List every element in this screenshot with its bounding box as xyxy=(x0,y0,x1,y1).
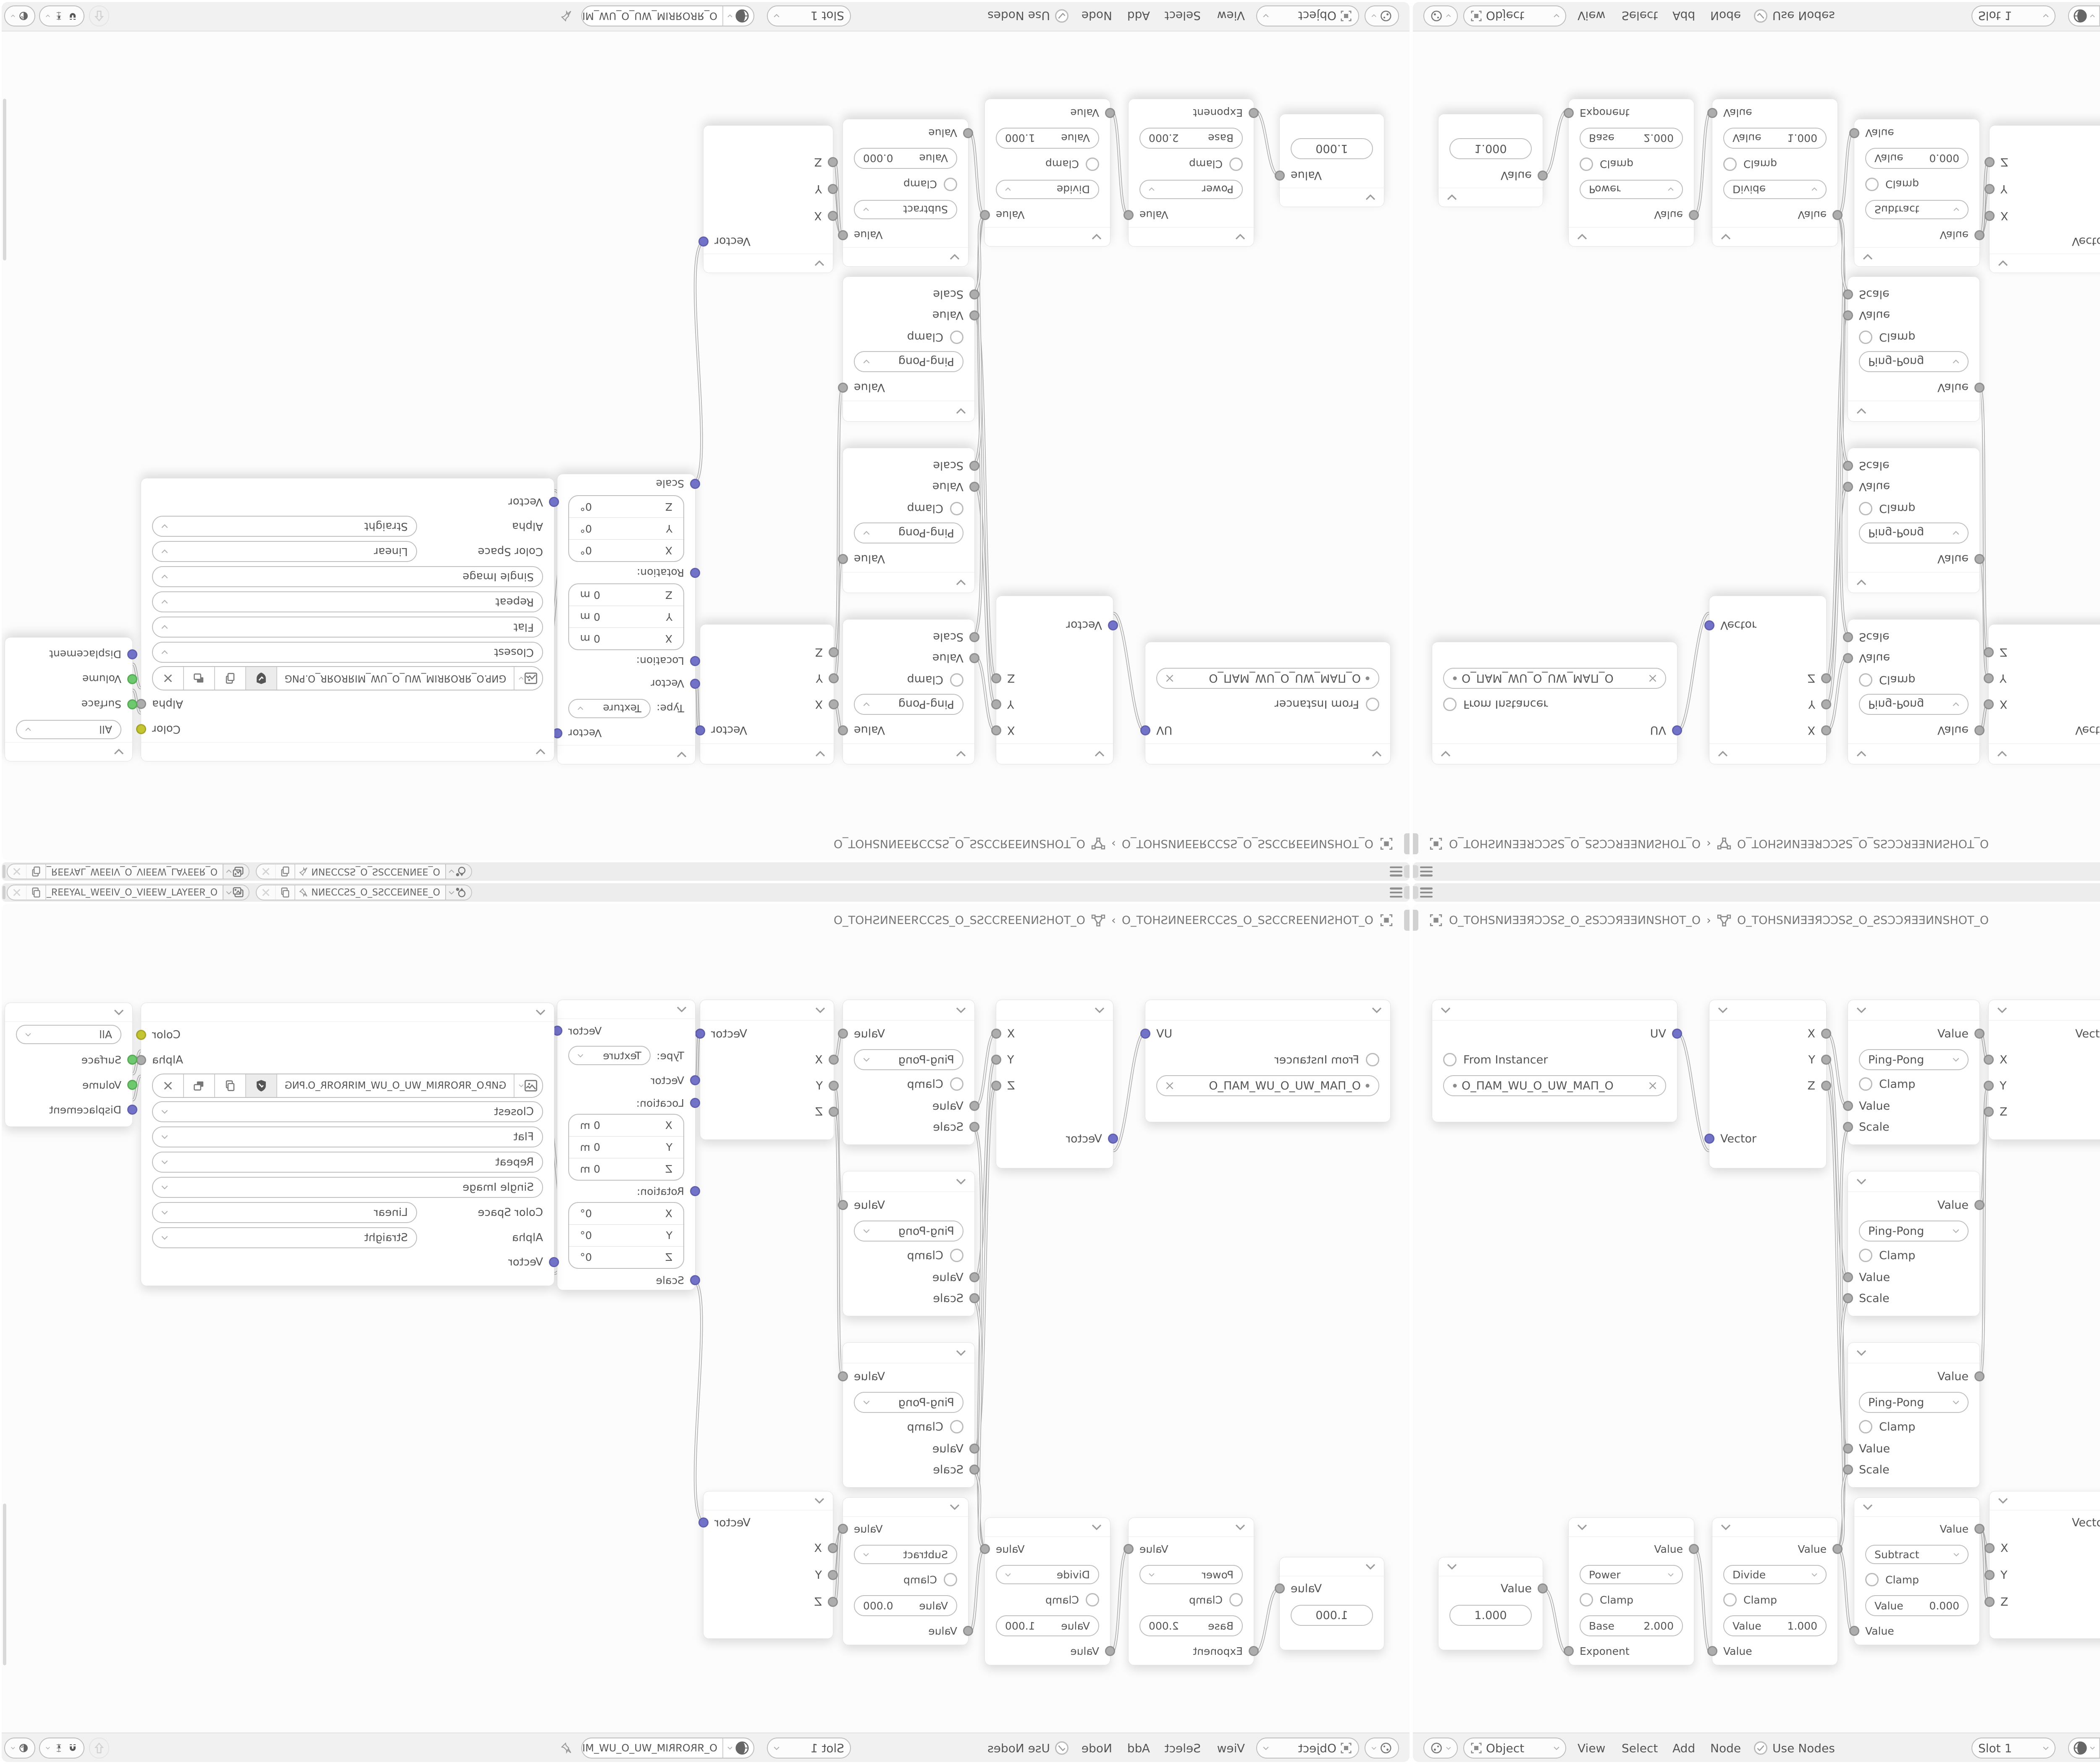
copy-icon[interactable] xyxy=(27,885,46,900)
vector-input-socket[interactable] xyxy=(1704,620,1714,630)
uv-output-socket[interactable] xyxy=(1672,1029,1682,1039)
copy-image-icon[interactable] xyxy=(215,667,246,690)
operation-select[interactable]: Divide xyxy=(1723,1565,1827,1584)
value-input-socket[interactable] xyxy=(963,1626,973,1636)
scale-input-socket[interactable] xyxy=(969,632,979,642)
location-fields[interactable]: X0 m Y0 m Z0 m xyxy=(568,584,684,651)
displacement-input-socket[interactable] xyxy=(127,649,137,659)
vector-input-socket[interactable] xyxy=(1108,1134,1118,1144)
node-canvas[interactable]: O_TOHSNИƎƎЯƆƆSƧ_O_ƧSƆƆЯƎƎИNSHOT_O › O_TO… xyxy=(2,904,1410,1732)
x-output-socket[interactable] xyxy=(991,1029,1001,1039)
material-selector[interactable]: O_ЯROЯRIM_WU_O_UW_MIЯROЯR_O xyxy=(2068,1738,2100,1759)
menu-select[interactable]: Select xyxy=(1165,1738,1201,1759)
color-output-socket[interactable] xyxy=(136,724,146,734)
operation-select[interactable]: Power xyxy=(1139,180,1243,199)
value-input-socket[interactable] xyxy=(969,653,979,663)
x-output-socket[interactable] xyxy=(991,725,1001,735)
uv-map-select[interactable]: O_ПAM_WU_O_UW_MAП_O xyxy=(1443,668,1666,689)
operation-select[interactable]: Ping-Pong xyxy=(854,1392,963,1413)
view-layer-name[interactable]: O_ЯƎƎYA⅃_WƎƎIV_O_VIƎƎW_⅃AYƎƎЯ_O xyxy=(46,864,223,879)
y-input-socket[interactable] xyxy=(1984,673,1994,683)
node-canvas[interactable]: O_TOHSNИƎƎЯƆƆSƧ_O_ƧSƆƆЯƎƎИNSHOT_O › O_TO… xyxy=(1413,904,2100,1732)
node-collapse[interactable] xyxy=(1432,743,1677,764)
from-instancer-checkbox[interactable] xyxy=(1443,698,1457,711)
clamp-checkbox[interactable] xyxy=(944,1573,957,1586)
menu-hamburger-icon[interactable] xyxy=(1420,887,1433,898)
menu-add[interactable]: Add xyxy=(1127,1738,1150,1759)
base-field[interactable]: Base2.000 xyxy=(1139,128,1243,149)
x-input-socket[interactable] xyxy=(1984,699,1994,709)
value-output-socket[interactable] xyxy=(1974,1200,1984,1210)
scrollbar-fragment[interactable] xyxy=(3,886,5,899)
node-combine-xyz-bottom[interactable]: Vector X Y Z xyxy=(1989,125,2100,273)
parent-up-button[interactable] xyxy=(89,5,109,26)
menu-hamburger-icon[interactable] xyxy=(1420,866,1433,877)
node-separate-xyz[interactable]: X Y Z Vector xyxy=(996,596,1113,764)
material-sphere-icon[interactable] xyxy=(2069,6,2099,26)
editor-type-select[interactable] xyxy=(1423,5,1458,26)
y-input-socket[interactable] xyxy=(1984,184,1995,194)
location-fields[interactable]: X0 m Y0 m Z0 m xyxy=(568,1114,684,1181)
node-math-pingpong-2[interactable]: Value Ping-Pong Clamp Value Scale xyxy=(1848,448,1980,593)
mapping-type-select[interactable]: Texture xyxy=(568,699,651,718)
z-input-socket[interactable] xyxy=(828,1597,838,1607)
menu-hamburger-icon[interactable] xyxy=(1390,866,1402,877)
value-output-socket[interactable] xyxy=(1832,1544,1843,1554)
clamp-checkbox[interactable] xyxy=(1859,502,1872,515)
clamp-checkbox[interactable] xyxy=(950,1420,963,1433)
value-input-socket[interactable] xyxy=(1843,653,1853,663)
uv-output-socket[interactable] xyxy=(1140,725,1150,735)
location-input-socket[interactable] xyxy=(690,1098,700,1108)
unlink-icon[interactable] xyxy=(8,864,27,879)
operation-select[interactable]: Divide xyxy=(996,180,1099,199)
image-icon[interactable] xyxy=(514,1074,542,1097)
value-output-socket[interactable] xyxy=(838,1524,848,1534)
operation-select[interactable]: Ping-Pong xyxy=(854,351,963,372)
value-output-socket[interactable] xyxy=(1974,383,1984,393)
image-name[interactable]: GИP.O_ЯROЯRIM_WU_O_UW_MIЯROЯR_O.PNG xyxy=(277,667,514,690)
interpolation-select[interactable]: Closest xyxy=(152,642,543,663)
value-output-socket[interactable] xyxy=(838,1029,848,1039)
alpha-output-socket[interactable] xyxy=(136,699,146,709)
copy-image-icon[interactable] xyxy=(215,1074,246,1097)
volume-input-socket[interactable] xyxy=(127,1080,137,1090)
value-input-socket[interactable] xyxy=(1843,1444,1853,1454)
location-input-socket[interactable] xyxy=(690,656,700,666)
y-output-socket[interactable] xyxy=(1821,1055,1831,1065)
node-math-divide[interactable]: Value Divide Clamp Value1.000 Value xyxy=(1712,1517,1838,1665)
vector-input-socket[interactable] xyxy=(690,1075,700,1085)
node-collapse[interactable] xyxy=(1432,1000,1677,1021)
node-math-power[interactable]: Value Power Clamp Base2.000 Exponent xyxy=(1128,1517,1254,1665)
material-selector[interactable]: O_ЯROЯRIM_WU_O_UW_MIЯROЯR_O xyxy=(2068,5,2100,26)
scale-input-socket[interactable] xyxy=(1843,289,1853,299)
material-selector[interactable]: O_ЯROЯRIM_WU_O_UW_MIЯROЯR_O xyxy=(581,5,754,26)
clamp-checkbox[interactable] xyxy=(944,178,957,191)
snapping-control[interactable] xyxy=(39,5,84,26)
shader-mode-select[interactable]: Object xyxy=(1463,1738,1566,1759)
x-input-socket[interactable] xyxy=(828,211,838,221)
view-layer-name[interactable]: O_ЯƎƎYA⅃_WƎƎIV_O_VIƎƎW_⅃AYƎƎЯ_O xyxy=(46,885,223,900)
value-output-socket[interactable] xyxy=(1689,1544,1699,1554)
unlink-x-icon[interactable] xyxy=(153,1074,184,1097)
value-input-socket[interactable] xyxy=(969,1444,979,1454)
operation-select[interactable]: Subtract xyxy=(854,1545,957,1564)
value-output-socket[interactable] xyxy=(1538,171,1548,181)
node-collapse[interactable] xyxy=(1145,743,1390,764)
output-target-select[interactable]: All xyxy=(16,1025,121,1044)
fake-user-shield-icon[interactable] xyxy=(246,1074,277,1097)
node-math-pingpong-3[interactable]: Value Ping-Pong Clamp Value Scale xyxy=(843,276,975,422)
output-target-select[interactable]: All xyxy=(16,720,121,739)
value-output-socket[interactable] xyxy=(1689,210,1699,220)
material-sphere-icon[interactable] xyxy=(723,6,753,26)
node-uv-map[interactable]: UV From Instancer O_ПAM_WU_O_UW_MAП_O xyxy=(1432,1000,1677,1122)
value-output-socket[interactable] xyxy=(838,1200,848,1210)
value-output-socket[interactable] xyxy=(1538,1583,1548,1593)
operation-select[interactable]: Power xyxy=(1580,180,1683,199)
node-math-subtract[interactable]: Value Subtract Clamp Value0.000 Value xyxy=(1854,1497,1980,1645)
use-nodes-checkbox[interactable]: Use Nodes xyxy=(987,1738,1068,1759)
clear-x-icon[interactable] xyxy=(1648,1081,1657,1090)
view-layer-selector[interactable]: O_ЯƎƎYA⅃_WƎƎIV_O_VIƎƎW_⅃AYƎƎЯ_O xyxy=(7,864,249,879)
use-nodes-checkbox[interactable]: Use Nodes xyxy=(1754,5,1835,26)
clamp-checkbox[interactable] xyxy=(1229,1593,1243,1606)
y-output-socket[interactable] xyxy=(991,699,1001,709)
menu-node[interactable]: Node xyxy=(1710,1738,1741,1759)
x-output-socket[interactable] xyxy=(1821,1029,1831,1039)
node-math-pingpong-1[interactable]: Value Ping-Pong Clamp Value Scale xyxy=(1848,619,1980,764)
value-output-socket[interactable] xyxy=(980,210,990,220)
unlink-x-icon[interactable] xyxy=(153,667,184,690)
scale-input-socket[interactable] xyxy=(969,461,979,471)
y-input-socket[interactable] xyxy=(828,184,838,194)
value-output-socket[interactable] xyxy=(1275,171,1285,181)
uv-map-select[interactable]: O_ПAM_WU_O_UW_MAП_O xyxy=(1443,1075,1666,1096)
node-uv-map[interactable]: UV From Instancer O_ПAM_WU_O_UW_MAП_O xyxy=(1145,642,1391,764)
clamp-checkbox[interactable] xyxy=(1086,157,1099,171)
menu-add[interactable]: Add xyxy=(1672,5,1695,26)
clamp-checkbox[interactable] xyxy=(1865,178,1879,191)
base-field[interactable]: Base2.000 xyxy=(1580,128,1683,149)
node-math-power[interactable]: Value Power Clamp Base2.000 Exponent xyxy=(1128,99,1254,247)
extension-select[interactable]: Repeat xyxy=(152,1152,543,1173)
y-input-socket[interactable] xyxy=(828,1570,838,1580)
menu-select[interactable]: Select xyxy=(1622,5,1658,26)
node-math-divide[interactable]: Value Divide Clamp Value1.000 Value xyxy=(1712,99,1838,247)
node-uv-map[interactable]: UV From Instancer O_ПAM_WU_O_UW_MAП_O xyxy=(1432,642,1677,764)
node-canvas[interactable]: O_TOHSNИƎƎЯƆƆSƧ_O_ƧSƆƆЯƎƎИNSHOT_O › O_TO… xyxy=(2,31,1410,860)
source-select[interactable]: Single Image xyxy=(152,566,543,587)
pack-image-icon[interactable] xyxy=(184,667,215,690)
node-separate-xyz[interactable]: X Y Z Vector xyxy=(1709,596,1827,764)
node-material-output[interactable]: All Surface Volume Displacement xyxy=(5,637,133,761)
z-input-socket[interactable] xyxy=(829,647,839,657)
z-input-socket[interactable] xyxy=(829,1107,839,1117)
uv-output-socket[interactable] xyxy=(1672,725,1682,735)
alpha-output-socket[interactable] xyxy=(136,1055,146,1065)
material-sphere-icon[interactable] xyxy=(723,1738,753,1758)
value-input-socket[interactable] xyxy=(1843,310,1853,320)
projection-select[interactable]: Flat xyxy=(152,1126,543,1147)
operation-select[interactable]: Ping-Pong xyxy=(854,694,963,715)
pin-icon[interactable] xyxy=(560,1738,573,1759)
node-material-output[interactable]: All Surface Volume Displacement xyxy=(5,1003,133,1127)
scene-selector[interactable]: O_ƎƎИNƎƆƆSƧ_O_ƧSƆƆƎNИ... xyxy=(256,864,472,879)
exponent-input-socket[interactable] xyxy=(1564,108,1574,118)
node-math-pingpong-1[interactable]: Value Ping-Pong Clamp Value Scale xyxy=(1848,1000,1980,1145)
base-field[interactable]: Base2.000 xyxy=(1580,1615,1683,1636)
x-input-socket[interactable] xyxy=(1984,211,1995,221)
node-math-pingpong-3[interactable]: Value Ping-Pong Clamp Value Scale xyxy=(843,1342,975,1488)
node-math-pingpong-2[interactable]: Value Ping-Pong Clamp Value Scale xyxy=(1848,1171,1980,1316)
rotation-fields[interactable]: X0° Y0° Z0° xyxy=(568,496,684,562)
pin-icon[interactable] xyxy=(295,885,312,900)
unlink-icon[interactable] xyxy=(257,885,276,900)
extension-select[interactable]: Repeat xyxy=(152,591,543,612)
menu-node[interactable]: Node xyxy=(1081,5,1112,26)
value-input-socket[interactable] xyxy=(963,128,973,138)
node-value[interactable]: Value 1.000 xyxy=(1279,1557,1384,1650)
node-combine-xyz-top[interactable]: Vector X Y Z xyxy=(1988,624,2100,764)
clamp-checkbox[interactable] xyxy=(1229,157,1243,171)
node-math-divide[interactable]: Value Divide Clamp Value1.000 Value xyxy=(984,1517,1110,1665)
clamp-checkbox[interactable] xyxy=(950,1077,963,1091)
x-input-socket[interactable] xyxy=(1984,1543,1995,1553)
node-combine-xyz-top[interactable]: Vector X Y Z xyxy=(700,1000,834,1140)
x-output-socket[interactable] xyxy=(1821,725,1831,735)
x-input-socket[interactable] xyxy=(1984,1055,1994,1065)
z-output-socket[interactable] xyxy=(1821,1081,1831,1091)
scale-input-socket[interactable] xyxy=(969,289,979,299)
parent-up-button[interactable] xyxy=(89,1738,109,1759)
scale-input-socket[interactable] xyxy=(1843,1465,1853,1475)
value-output-socket[interactable] xyxy=(1974,554,1984,564)
vector-input-socket[interactable] xyxy=(549,1257,559,1267)
slot-select[interactable]: Slot 1 xyxy=(767,5,851,26)
node-math-pingpong-1[interactable]: Value Ping-Pong Clamp Value Scale xyxy=(843,619,975,764)
value-input-socket[interactable] xyxy=(969,1272,979,1282)
clamp-checkbox[interactable] xyxy=(1580,1593,1593,1606)
clamp-checkbox[interactable] xyxy=(1723,157,1737,171)
value-output-socket[interactable] xyxy=(838,725,848,735)
color-output-socket[interactable] xyxy=(136,1030,146,1040)
image-name[interactable]: GИP.O_ЯROЯRIM_WU_O_UW_MIЯROЯR_O.PNG xyxy=(277,1074,514,1097)
value-output-socket[interactable] xyxy=(1123,210,1134,220)
node-combine-xyz-top[interactable]: Vector X Y Z xyxy=(1988,1000,2100,1140)
operation-select[interactable]: Ping-Pong xyxy=(1859,694,1969,715)
editor-type-select[interactable] xyxy=(1423,1738,1458,1759)
image-icon[interactable] xyxy=(514,667,542,690)
z-input-socket[interactable] xyxy=(1984,647,1994,657)
editor-type-select[interactable] xyxy=(1365,5,1399,26)
value-input-socket[interactable] xyxy=(1843,1101,1853,1111)
value-field[interactable]: Value1.000 xyxy=(1723,128,1827,149)
surface-input-socket[interactable] xyxy=(127,699,137,709)
z-input-socket[interactable] xyxy=(828,157,838,167)
z-input-socket[interactable] xyxy=(1984,157,1995,167)
node-collapse[interactable] xyxy=(1145,1000,1390,1021)
menu-view[interactable]: View xyxy=(1578,1738,1605,1759)
operation-select[interactable]: Ping-Pong xyxy=(1859,1049,1969,1070)
shader-mode-select[interactable]: Object xyxy=(1256,5,1359,26)
operation-select[interactable]: Subtract xyxy=(854,200,957,219)
scale-input-socket[interactable] xyxy=(690,479,700,489)
menu-node[interactable]: Node xyxy=(1710,5,1741,26)
operation-select[interactable]: Power xyxy=(1580,1565,1683,1584)
node-math-subtract[interactable]: Value Subtract Clamp Value0.000 Value xyxy=(843,119,969,267)
menu-add[interactable]: Add xyxy=(1127,5,1150,26)
value-field[interactable]: Value0.000 xyxy=(854,1595,957,1616)
node-combine-xyz-bottom[interactable]: Vector X Y Z xyxy=(703,125,833,273)
y-input-socket[interactable] xyxy=(829,1081,839,1091)
rotation-input-socket[interactable] xyxy=(690,568,700,578)
menu-add[interactable]: Add xyxy=(1672,1738,1695,1759)
menu-view[interactable]: View xyxy=(1217,1738,1245,1759)
view-layer-selector[interactable]: O_ЯƎƎYA⅃_WƎƎIV_O_VIƎƎW_⅃AYƎƎЯ_O xyxy=(7,885,249,900)
scale-input-socket[interactable] xyxy=(1843,461,1853,471)
source-select[interactable]: Single Image xyxy=(152,1177,543,1198)
menu-view[interactable]: View xyxy=(1578,5,1605,26)
operation-select[interactable]: Power xyxy=(1139,1565,1243,1584)
node-math-power[interactable]: Value Power Clamp Base2.000 Exponent xyxy=(1568,99,1694,247)
value-field[interactable]: Value0.000 xyxy=(854,148,957,169)
material-sphere-icon[interactable] xyxy=(2069,1738,2099,1758)
copy-icon[interactable] xyxy=(276,864,295,879)
clamp-checkbox[interactable] xyxy=(950,502,963,515)
shader-mode-select[interactable]: Object xyxy=(1256,1738,1359,1759)
clamp-checkbox[interactable] xyxy=(1086,1593,1099,1606)
node-value[interactable]: Value 1.000 xyxy=(1438,114,1543,207)
scene-name[interactable]: O_ƎƎИNƎƆƆSƧ_O_ƧSƆƆƎNИ... xyxy=(312,864,445,879)
overlays-control[interactable] xyxy=(4,1738,35,1759)
value-output-socket[interactable] xyxy=(1974,1029,1984,1039)
clamp-checkbox[interactable] xyxy=(1859,1077,1872,1091)
mapping-type-select[interactable]: Texture xyxy=(568,1046,651,1065)
exponent-input-socket[interactable] xyxy=(1564,1646,1574,1656)
node-math-pingpong-2[interactable]: Value Ping-Pong Clamp Value Scale xyxy=(843,448,975,593)
value-output-socket[interactable] xyxy=(838,230,848,240)
value-field[interactable]: 1.000 xyxy=(1449,1605,1532,1626)
clamp-checkbox[interactable] xyxy=(950,673,963,687)
clamp-checkbox[interactable] xyxy=(950,331,963,344)
node-math-subtract[interactable]: Value Subtract Clamp Value0.000 Value xyxy=(843,1497,969,1645)
z-output-socket[interactable] xyxy=(991,673,1001,683)
value-input-socket[interactable] xyxy=(1849,128,1859,138)
vector-output-socket[interactable] xyxy=(698,1517,709,1528)
overlays-control[interactable] xyxy=(4,5,35,26)
node-math-pingpong-3[interactable]: Value Ping-Pong Clamp Value Scale xyxy=(1848,276,1980,422)
value-input-socket[interactable] xyxy=(969,310,979,320)
operation-select[interactable]: Divide xyxy=(996,1565,1099,1584)
copy-icon[interactable] xyxy=(276,885,295,900)
rotation-fields[interactable]: X0° Y0° Z0° xyxy=(568,1202,684,1269)
vector-input-socket[interactable] xyxy=(690,679,700,689)
node-math-pingpong-3[interactable]: Value Ping-Pong Clamp Value Scale xyxy=(1848,1342,1980,1488)
scale-input-socket[interactable] xyxy=(1843,632,1853,642)
clamp-checkbox[interactable] xyxy=(1859,1420,1872,1433)
clamp-checkbox[interactable] xyxy=(1865,1573,1879,1586)
material-name[interactable]: O_ЯROЯRIM_WU_O_UW_MIЯROЯR_O xyxy=(581,6,723,26)
scale-input-socket[interactable] xyxy=(969,1122,979,1132)
scene-name[interactable]: O_ƎƎИNƎƆƆSƧ_O_ƧSƆƆƎNИ... xyxy=(312,885,445,900)
fake-user-shield-icon[interactable] xyxy=(246,667,277,690)
z-input-socket[interactable] xyxy=(1984,1107,1994,1117)
alpha-mode-select[interactable]: Straight xyxy=(152,516,417,537)
clamp-checkbox[interactable] xyxy=(1723,1593,1737,1606)
value-field[interactable]: 1.000 xyxy=(1291,138,1373,159)
scale-input-socket[interactable] xyxy=(1843,1122,1853,1132)
node-combine-xyz-top[interactable]: Vector X Y Z xyxy=(700,624,834,764)
value-output-socket[interactable] xyxy=(980,1544,990,1554)
value-input-socket[interactable] xyxy=(1843,1272,1853,1282)
value-input-socket[interactable] xyxy=(1843,482,1853,492)
snapping-control[interactable] xyxy=(39,1738,84,1759)
value-field[interactable]: Value1.000 xyxy=(1723,1615,1827,1636)
node-value[interactable]: Value 1.000 xyxy=(1279,114,1384,207)
scene-selector[interactable]: O_ƎƎИNƎƆƆSƧ_O_ƧSƆƆƎNИ... xyxy=(256,885,472,900)
y-output-socket[interactable] xyxy=(1821,699,1831,709)
slot-select[interactable]: Slot 1 xyxy=(767,1738,851,1759)
unlink-icon[interactable] xyxy=(8,885,27,900)
vector-input-socket[interactable] xyxy=(549,497,559,507)
from-instancer-checkbox[interactable] xyxy=(1366,1053,1379,1066)
surface-input-socket[interactable] xyxy=(127,1055,137,1065)
uv-map-select[interactable]: O_ПAM_WU_O_UW_MAП_O xyxy=(1156,1075,1379,1096)
node-image-texture[interactable]: Color Alpha GИP.O_ЯROЯRIM_WU_O_UW_MIЯROЯ… xyxy=(141,478,554,761)
value-output-socket[interactable] xyxy=(838,383,848,393)
operation-select[interactable]: Ping-Pong xyxy=(854,1049,963,1070)
node-separate-xyz[interactable]: X Y Z Vector xyxy=(1709,1000,1827,1168)
material-selector[interactable]: O_ЯROЯRIM_WU_O_UW_MIЯROЯR_O xyxy=(581,1738,754,1759)
value-output-socket[interactable] xyxy=(838,1371,848,1381)
clamp-checkbox[interactable] xyxy=(1859,1249,1872,1262)
value-input-socket[interactable] xyxy=(969,1101,979,1111)
y-input-socket[interactable] xyxy=(1984,1081,1994,1091)
node-math-pingpong-2[interactable]: Value Ping-Pong Clamp Value Scale xyxy=(843,1171,975,1316)
canvas-scrollbar[interactable] xyxy=(3,99,6,260)
z-input-socket[interactable] xyxy=(1984,1597,1995,1607)
node-mapping[interactable]: Vector Type:Texture Vector Location: X0 … xyxy=(557,1000,696,1290)
value-output-socket[interactable] xyxy=(1974,1524,1984,1534)
uv-map-select[interactable]: O_ПAM_WU_O_UW_MAП_O xyxy=(1156,668,1379,689)
node-mapping[interactable]: Vector Type:Texture Vector Location: X0 … xyxy=(557,474,696,764)
value-input-socket[interactable] xyxy=(1707,108,1717,118)
copy-icon[interactable] xyxy=(27,864,46,879)
scale-input-socket[interactable] xyxy=(1843,1293,1853,1303)
shader-mode-select[interactable]: Object xyxy=(1463,5,1566,26)
menu-select[interactable]: Select xyxy=(1622,1738,1658,1759)
image-selector[interactable]: GИP.O_ЯROЯRIM_WU_O_UW_MIЯROЯR_O.PNG xyxy=(152,1074,543,1098)
operation-select[interactable]: Ping-Pong xyxy=(1859,522,1969,543)
value-field[interactable]: 1.000 xyxy=(1449,138,1532,159)
scale-input-socket[interactable] xyxy=(690,1275,700,1285)
exponent-input-socket[interactable] xyxy=(1249,1646,1259,1656)
image-selector[interactable]: GИP.O_ЯROЯRIM_WU_O_UW_MIЯROЯR_O.PNG xyxy=(152,666,543,690)
menu-view[interactable]: View xyxy=(1217,5,1245,26)
operation-select[interactable]: Ping-Pong xyxy=(854,1221,963,1242)
value-output-socket[interactable] xyxy=(838,554,848,564)
material-name[interactable]: O_ЯROЯRIM_WU_O_UW_MIЯROЯR_O xyxy=(581,1738,723,1758)
vector-output-socket[interactable] xyxy=(695,725,705,735)
value-field[interactable]: Value0.000 xyxy=(1865,148,1969,169)
x-input-socket[interactable] xyxy=(829,699,839,709)
menu-node[interactable]: Node xyxy=(1081,1738,1112,1759)
base-field[interactable]: Base2.000 xyxy=(1139,1615,1243,1636)
clear-x-icon[interactable] xyxy=(1165,674,1174,682)
pack-image-icon[interactable] xyxy=(184,1074,215,1097)
